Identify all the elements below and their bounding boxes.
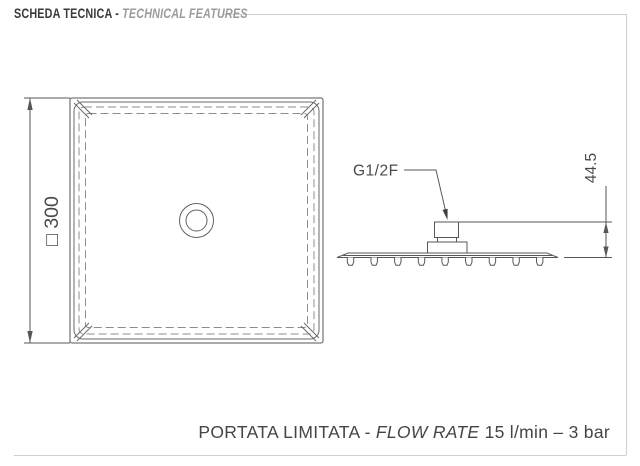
plan-outer-square [70,98,323,343]
connection-leader [404,170,448,220]
plan-hidden-edge-outer [79,107,314,334]
connector-neck [438,238,457,243]
technical-drawing: □ 300 [0,0,640,466]
height-arrow-up [603,222,608,233]
side-view [337,222,558,265]
width-arrow-down [27,331,32,343]
plan-center-inlet [180,204,214,238]
plan-inner-edge [74,102,319,339]
flow-rate-note: PORTATA LIMITATA - FLOW RATE 15 l/min – … [198,422,610,443]
connection-leader-line [404,170,447,217]
spray-nozzles [347,258,543,266]
width-dimension-label: □ 300 [41,196,63,246]
height-arrow-down [603,247,608,258]
flow-rate-note-italian: PORTATA LIMITATA - [198,422,375,442]
height-dimension [459,186,612,258]
datasheet-page: SCHEDA TECNICA - TECHNICAL FEATURES [0,0,640,466]
connector-fitting [435,222,459,238]
connection-leader-arrow [443,209,448,220]
flow-rate-note-english: FLOW RATE [376,422,480,442]
plan-corner-folds [74,100,319,341]
connection-label: G1/2F [353,163,399,180]
width-arrow-up [27,98,32,110]
water-connector [428,222,468,253]
height-dimension-label: 44.5 [583,153,600,183]
connector-base-block [428,242,468,253]
plan-hidden-edge-inner [86,114,308,328]
plan-view [70,98,323,343]
flow-rate-note-value: 15 l/min – 3 bar [479,422,610,442]
